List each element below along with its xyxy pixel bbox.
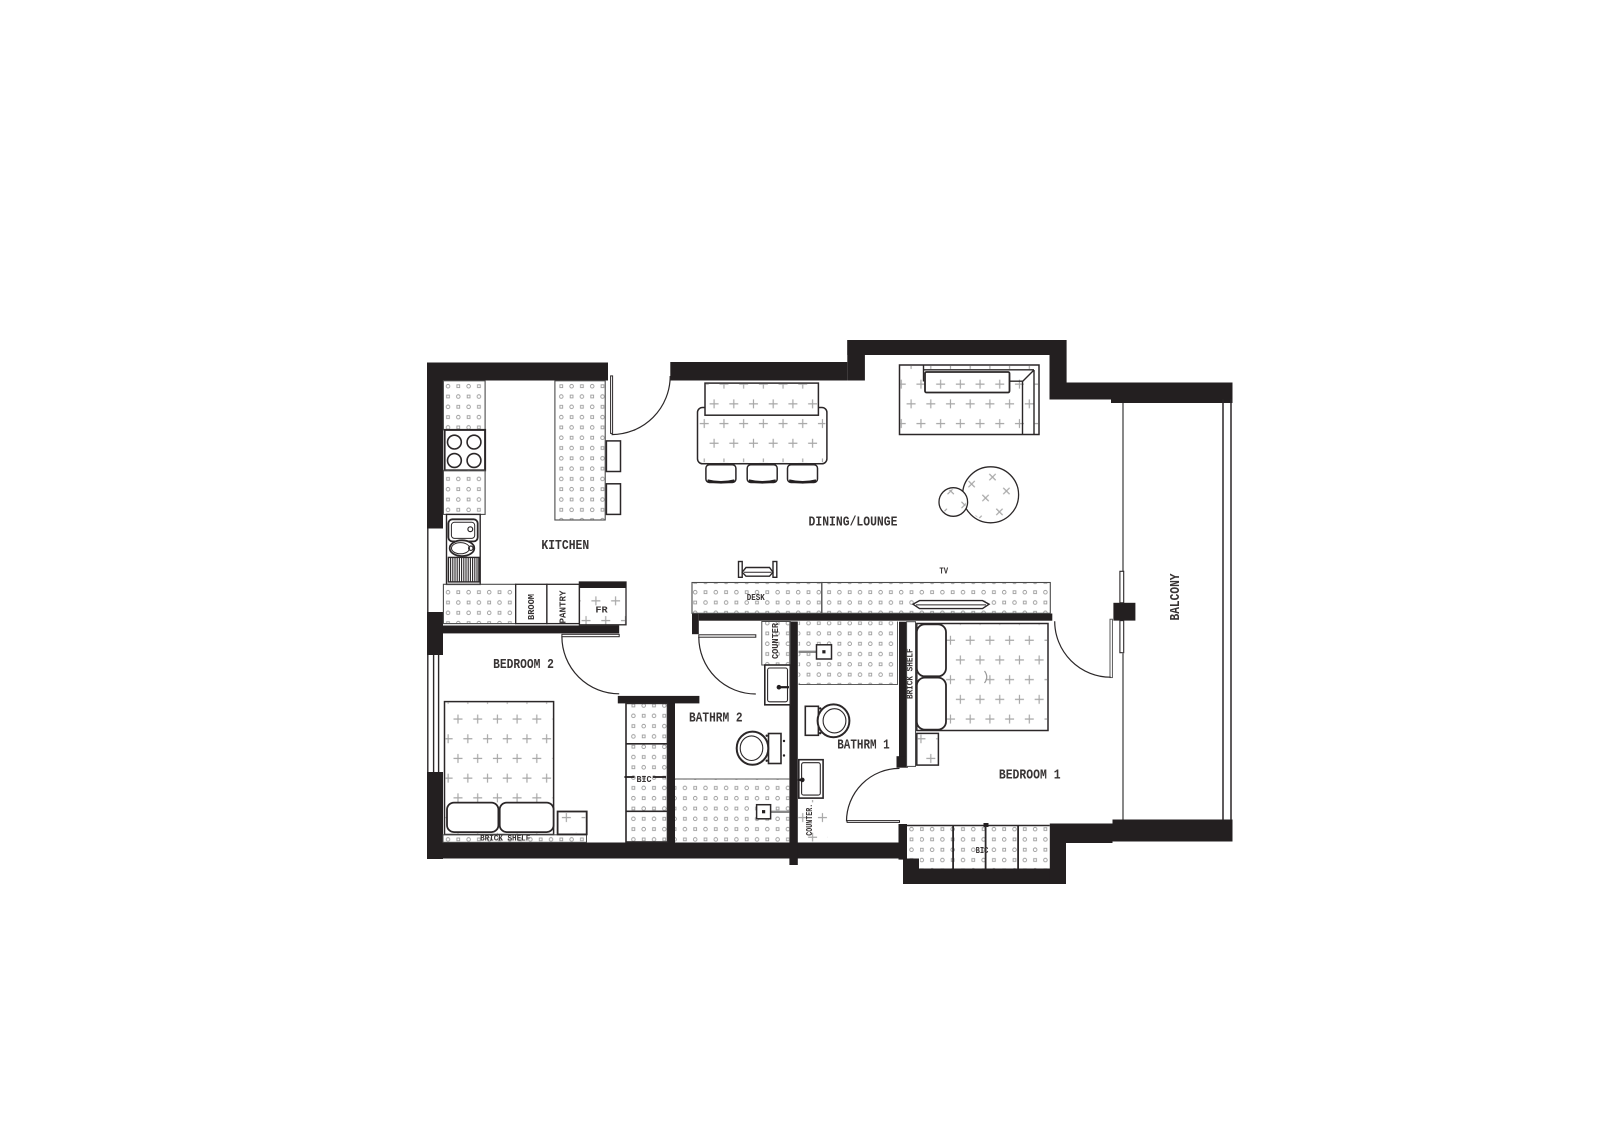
svg-text:DESK: DESK xyxy=(747,592,765,603)
svg-text:FR: FR xyxy=(595,605,608,616)
svg-text:COUNTER.: COUNTER. xyxy=(804,804,815,836)
svg-text:BEDROOM 2: BEDROOM 2 xyxy=(493,657,554,673)
svg-text:TV: TV xyxy=(939,565,948,576)
svg-text:BIC: BIC xyxy=(976,845,989,856)
svg-text:BRICK SHELF: BRICK SHELF xyxy=(480,835,530,844)
svg-text:COUNTER: COUNTER xyxy=(770,623,781,659)
svg-text:BRICK SHELF: BRICK SHELF xyxy=(905,648,916,699)
svg-text:KITCHEN: KITCHEN xyxy=(541,538,589,554)
svg-text:BIC: BIC xyxy=(637,774,652,785)
svg-text:BATHRM 2: BATHRM 2 xyxy=(689,710,743,726)
svg-text:BALCONY: BALCONY xyxy=(1168,573,1184,620)
svg-text:PANTRY: PANTRY xyxy=(558,590,569,623)
svg-text:BATHRM 1: BATHRM 1 xyxy=(837,737,890,753)
svg-text:DINING/LOUNGE: DINING/LOUNGE xyxy=(809,514,898,530)
svg-text:BROOM: BROOM xyxy=(526,594,537,620)
svg-text:BEDROOM 1: BEDROOM 1 xyxy=(999,768,1061,784)
